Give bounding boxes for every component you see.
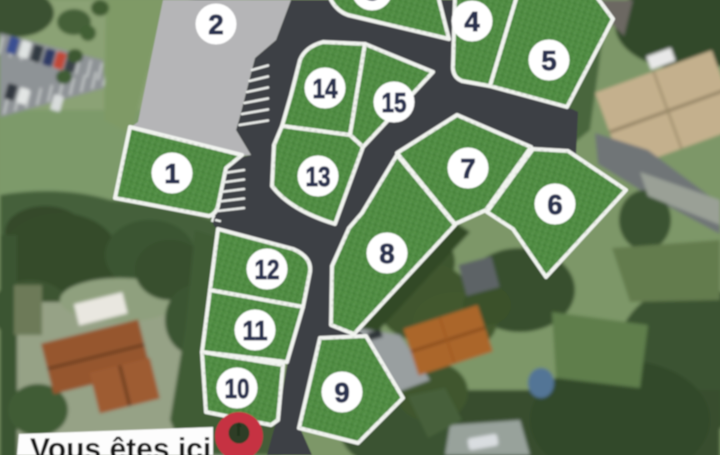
svg-text:5: 5	[541, 45, 556, 76]
svg-text:12: 12	[255, 254, 280, 285]
svg-text:7: 7	[460, 153, 475, 184]
svg-text:10: 10	[225, 373, 250, 404]
svg-text:11: 11	[243, 315, 268, 346]
svg-text:14: 14	[313, 73, 339, 104]
svg-text:Vous êtes ici: Vous êtes ici	[30, 433, 211, 455]
svg-text:13: 13	[306, 161, 331, 192]
svg-text:6: 6	[547, 189, 562, 220]
svg-text:9: 9	[334, 377, 349, 408]
svg-text:4: 4	[464, 6, 480, 37]
svg-text:1: 1	[164, 158, 179, 189]
svg-text:8: 8	[379, 238, 394, 269]
svg-text:3: 3	[364, 0, 379, 6]
svg-text:15: 15	[382, 87, 407, 118]
svg-text:2: 2	[208, 9, 223, 40]
